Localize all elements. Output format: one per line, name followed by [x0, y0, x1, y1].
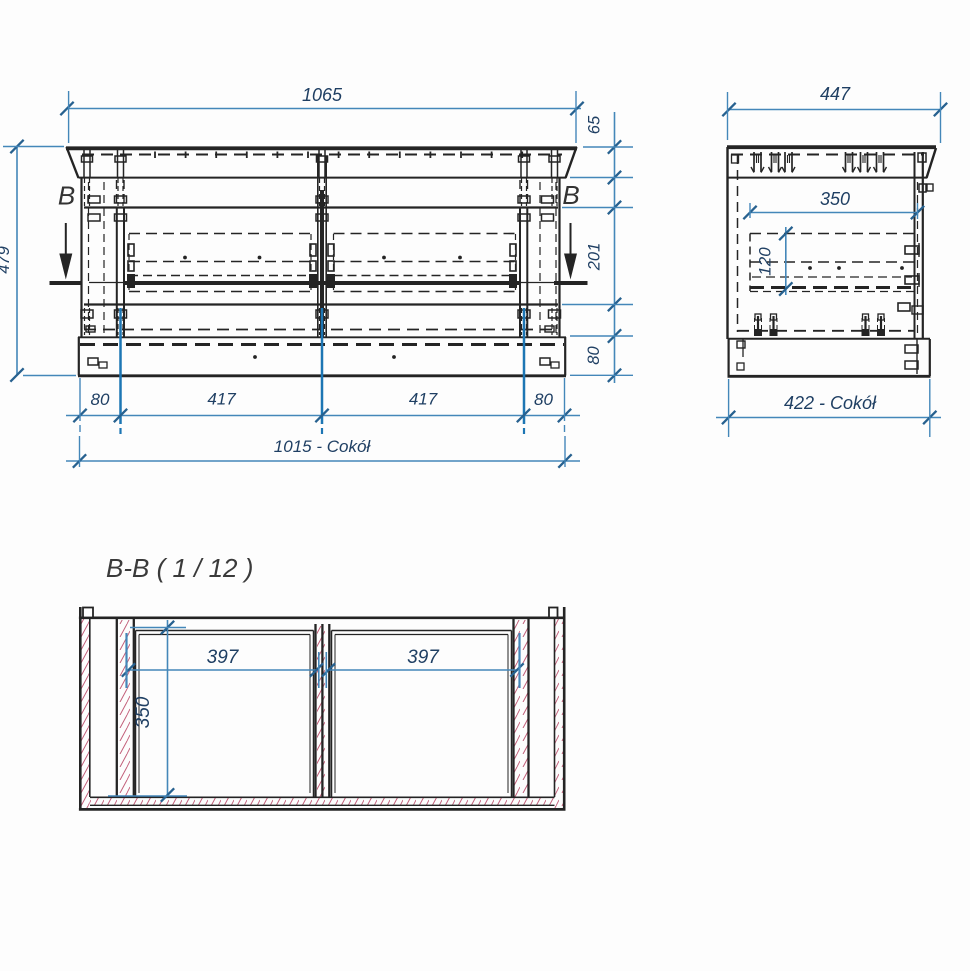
svg-text:80: 80 — [534, 390, 553, 409]
svg-text:201: 201 — [586, 243, 604, 272]
svg-text:120: 120 — [756, 247, 775, 276]
svg-text:65: 65 — [586, 115, 604, 134]
svg-text:B: B — [58, 181, 75, 211]
svg-text:422 - Cokół: 422 - Cokół — [784, 393, 877, 413]
svg-text:B-B ( 1 / 12 ): B-B ( 1 / 12 ) — [106, 553, 253, 583]
svg-text:1015 - Cokół: 1015 - Cokół — [274, 437, 372, 456]
svg-text:80: 80 — [585, 346, 603, 365]
svg-text:397: 397 — [207, 647, 240, 668]
svg-text:1065: 1065 — [302, 85, 343, 105]
svg-text:447: 447 — [820, 84, 851, 104]
svg-text:397: 397 — [407, 647, 440, 668]
svg-text:417: 417 — [207, 390, 236, 409]
svg-text:350: 350 — [820, 189, 850, 209]
svg-text:B: B — [562, 180, 579, 210]
svg-text:417: 417 — [409, 390, 438, 409]
svg-text:479: 479 — [0, 246, 13, 274]
svg-text:350: 350 — [133, 696, 154, 728]
svg-text:80: 80 — [91, 390, 110, 409]
